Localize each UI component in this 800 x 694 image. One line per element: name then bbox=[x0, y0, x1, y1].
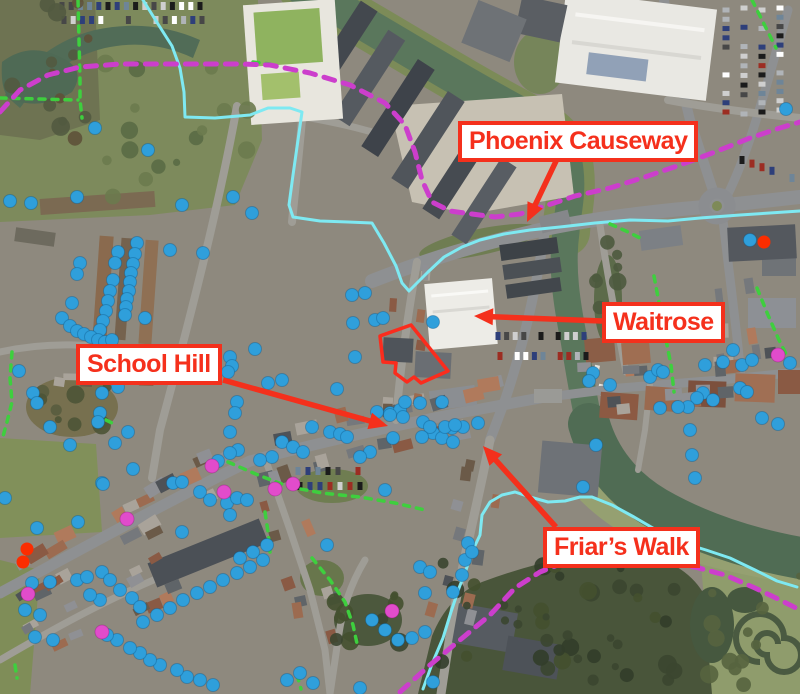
map-label-school-hill: School Hill bbox=[76, 344, 222, 385]
map-label-phoenix-causeway: Phoenix Causeway bbox=[458, 121, 698, 162]
aerial-map: Phoenix Causeway Waitrose School Hill Fr… bbox=[0, 0, 800, 694]
lido-pool bbox=[243, 0, 343, 125]
map-label-friars-walk: Friar’s Walk bbox=[543, 527, 700, 568]
waitrose-building bbox=[424, 278, 497, 350]
map-label-waitrose: Waitrose bbox=[602, 302, 725, 343]
